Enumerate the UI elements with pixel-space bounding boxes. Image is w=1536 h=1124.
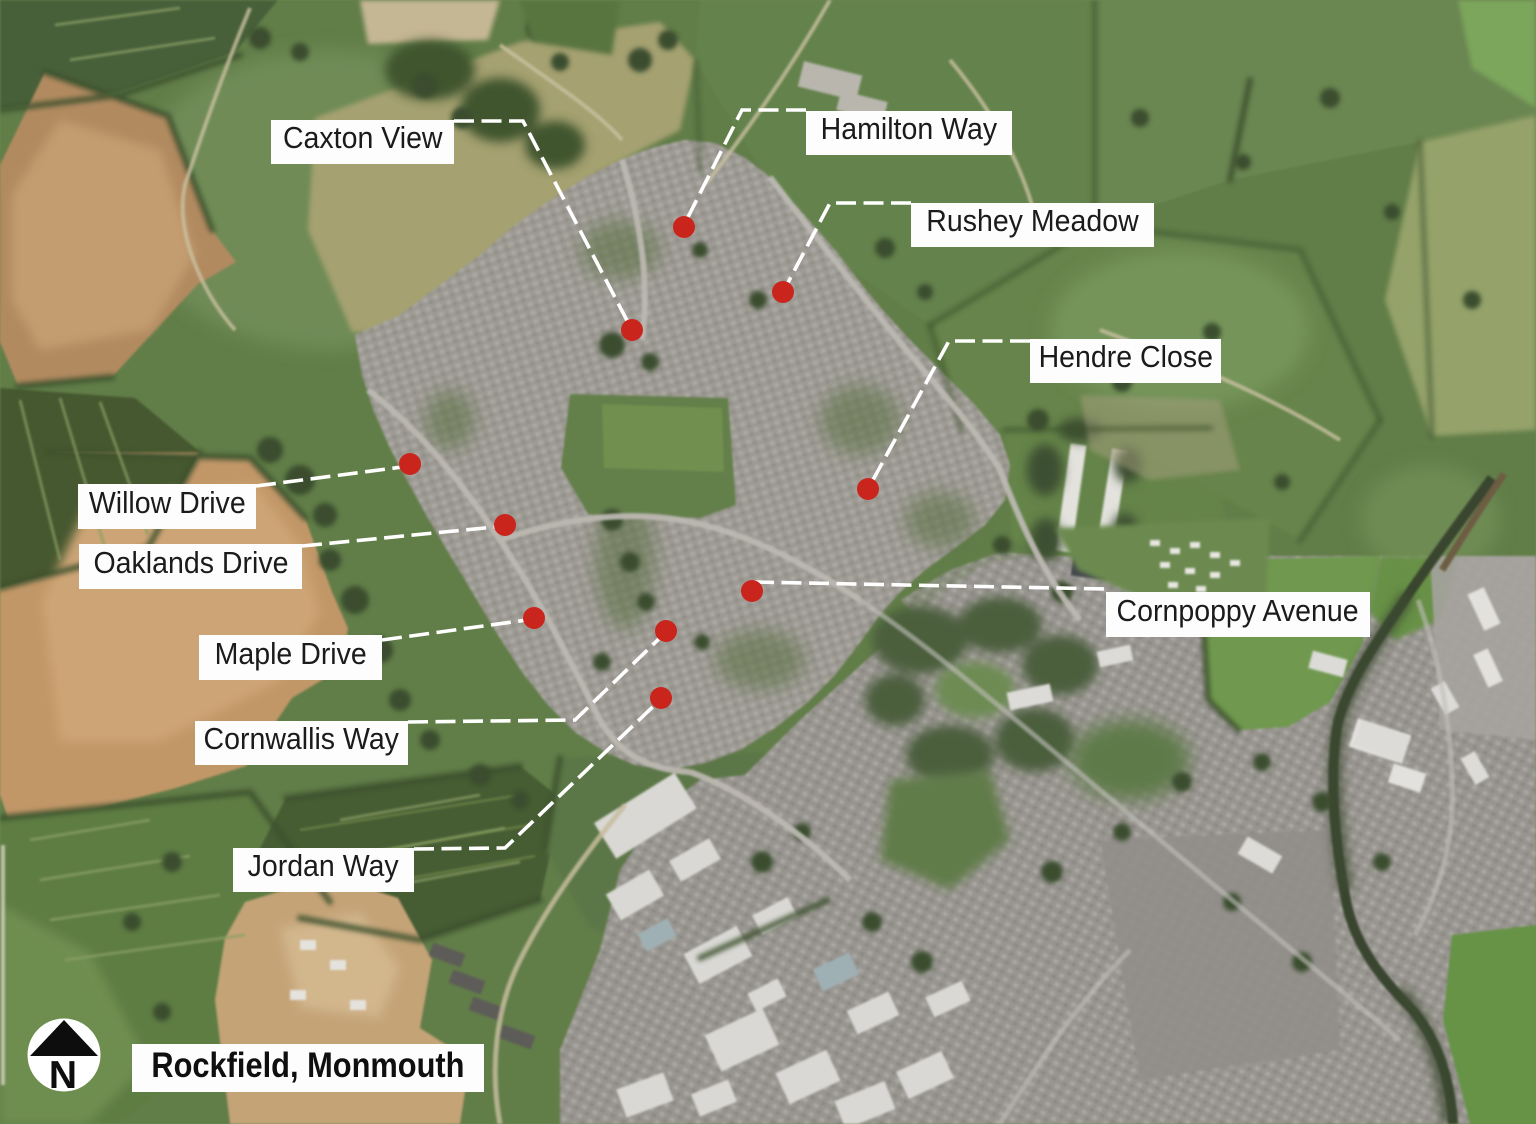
svg-text:N: N bbox=[49, 1054, 77, 1097]
